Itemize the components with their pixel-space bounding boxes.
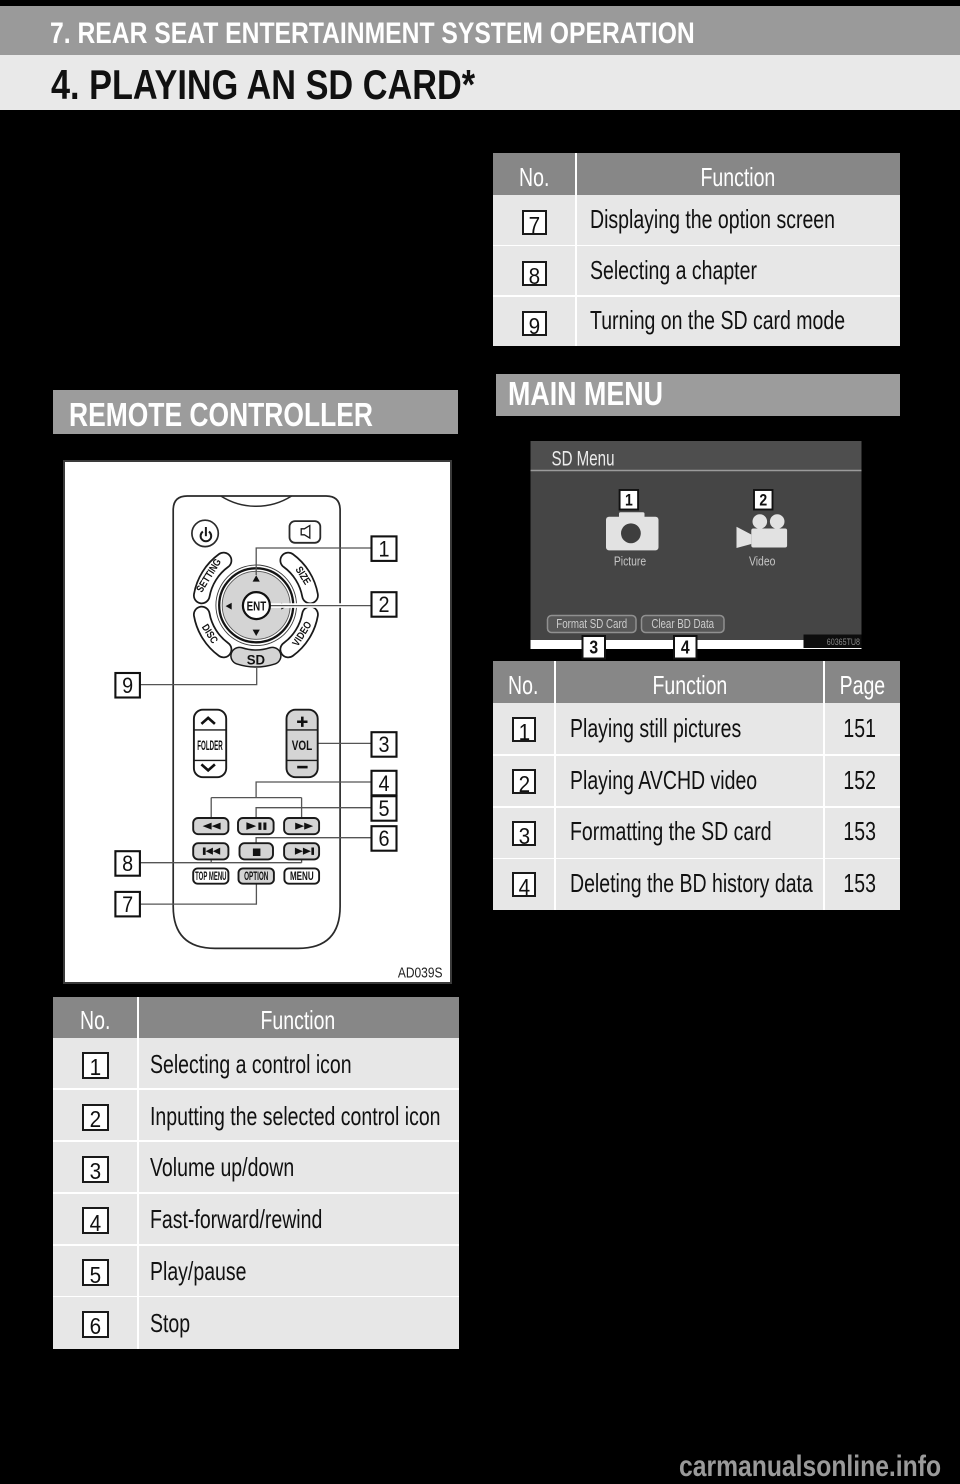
svg-text:Clear BD Data: Clear BD Data [651,618,714,631]
svg-text:2: 2 [759,491,767,509]
svg-text:2: 2 [378,593,389,617]
svg-text:AD039S: AD039S [398,964,443,981]
svg-text:SD Menu: SD Menu [552,446,615,470]
svg-text:7: 7 [122,893,133,917]
svg-text:ENT: ENT [247,600,267,614]
svg-text:FOLDER: FOLDER [197,739,223,754]
svg-text:60365TU8: 60365TU8 [827,636,860,647]
svg-text:Video: Video [749,555,776,569]
svg-text:1: 1 [625,491,633,509]
svg-text:9: 9 [122,674,133,698]
svg-text:SD: SD [247,652,266,667]
svg-text:3: 3 [589,636,598,658]
svg-text:4: 4 [378,772,389,796]
svg-text:VOL: VOL [292,738,313,754]
svg-text:TOP MENU: TOP MENU [195,870,227,883]
svg-text:Format SD Card: Format SD Card [556,618,627,631]
svg-text:6: 6 [378,827,389,851]
svg-text:3: 3 [378,733,389,757]
svg-text:4: 4 [681,636,690,658]
svg-text:8: 8 [122,852,133,876]
svg-text:Picture: Picture [614,555,647,569]
svg-text:MENU: MENU [290,871,314,884]
svg-text:5: 5 [378,797,389,821]
svg-text:OPTION: OPTION [244,870,268,882]
svg-text:1: 1 [378,537,389,561]
